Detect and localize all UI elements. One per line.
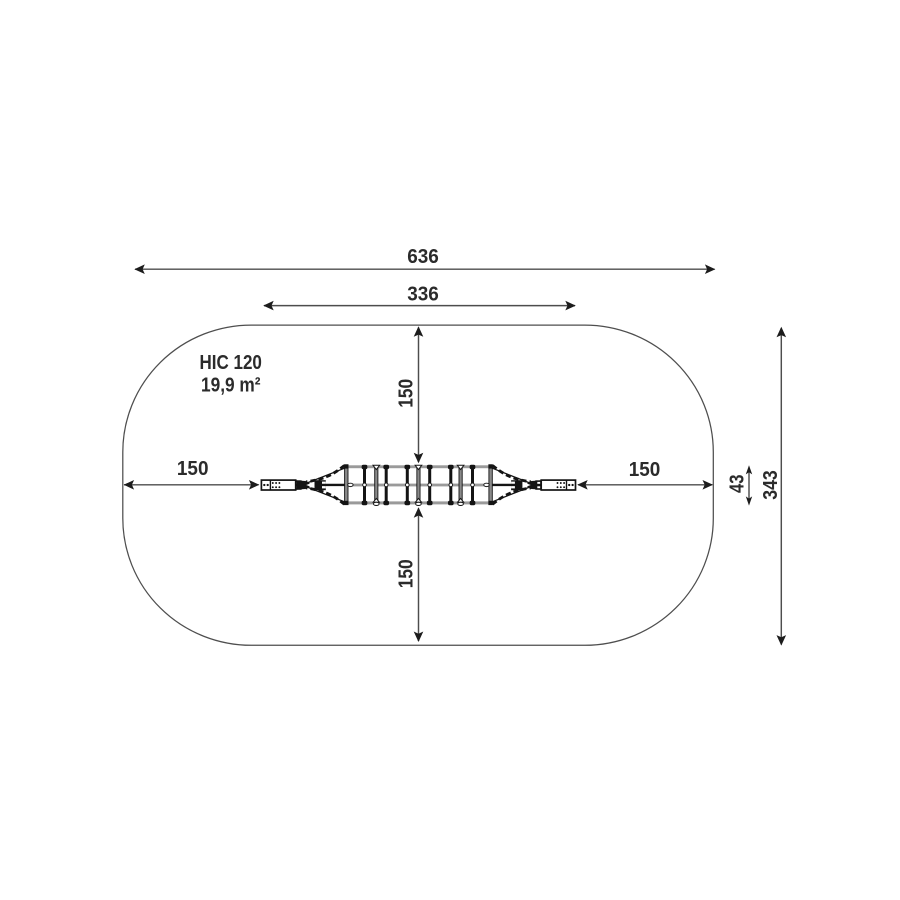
- svg-text:150: 150: [396, 559, 418, 588]
- svg-text:43: 43: [726, 475, 748, 494]
- svg-text:HIC 120: HIC 120: [200, 352, 262, 374]
- svg-text:343: 343: [760, 470, 782, 500]
- svg-text:336: 336: [407, 284, 439, 306]
- svg-text:19,9 m²: 19,9 m²: [201, 375, 261, 397]
- svg-text:150: 150: [629, 459, 661, 481]
- svg-text:636: 636: [407, 246, 439, 268]
- svg-text:150: 150: [396, 379, 418, 408]
- svg-text:150: 150: [177, 458, 209, 480]
